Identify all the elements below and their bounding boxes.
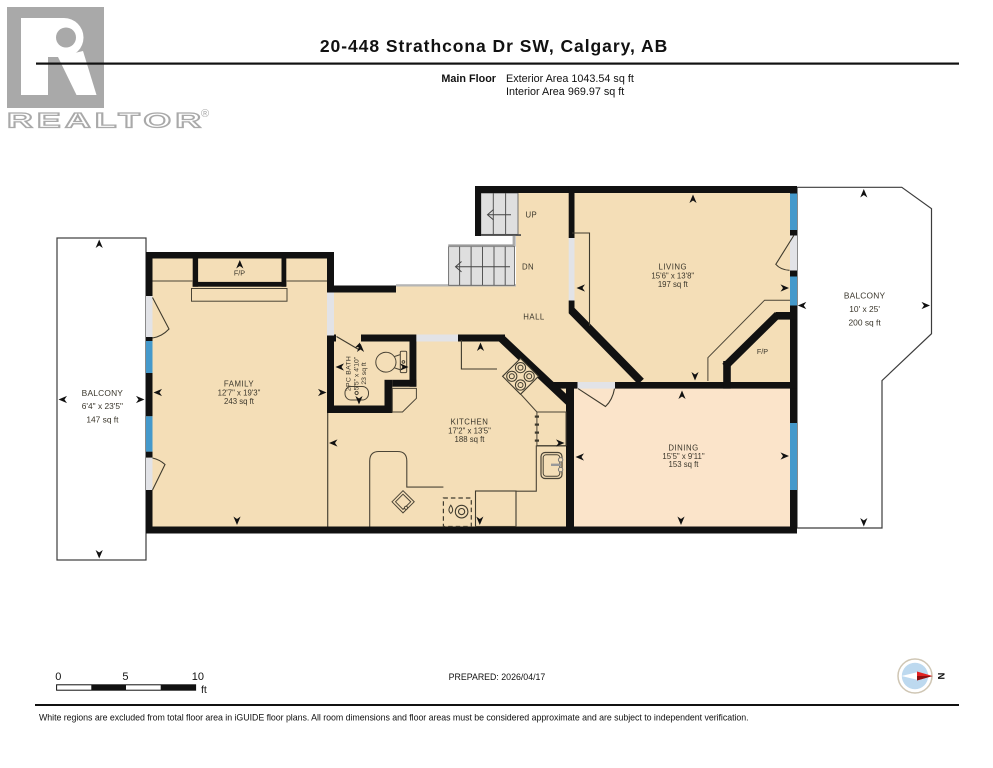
svg-text:10: 10	[192, 671, 204, 683]
svg-text:200 sq ft: 200 sq ft	[849, 317, 882, 327]
svg-text:N: N	[935, 673, 946, 680]
svg-text:HALL: HALL	[523, 312, 545, 321]
svg-text:Main Floor: Main Floor	[441, 73, 496, 85]
svg-text:LIVING: LIVING	[659, 263, 688, 272]
svg-text:Interior Area 969.97 sq ft: Interior Area 969.97 sq ft	[506, 86, 624, 98]
svg-text:243 sq ft: 243 sq ft	[224, 397, 255, 406]
svg-text:DN: DN	[522, 263, 534, 272]
svg-text:BALCONY: BALCONY	[82, 388, 124, 398]
svg-text:5: 5	[122, 671, 128, 683]
svg-text:0: 0	[55, 671, 61, 683]
svg-text:10' x 25': 10' x 25'	[849, 304, 880, 314]
svg-text:188 sq ft: 188 sq ft	[455, 435, 486, 444]
svg-text:BALCONY: BALCONY	[844, 291, 886, 301]
svg-text:147 sq ft: 147 sq ft	[86, 414, 119, 424]
svg-text:2PC BATH: 2PC BATH	[346, 356, 353, 391]
svg-text:197 sq ft: 197 sq ft	[658, 280, 689, 289]
svg-text:5'5" x 4'10": 5'5" x 4'10"	[353, 356, 360, 390]
svg-text:23 sq ft: 23 sq ft	[361, 362, 368, 384]
svg-text:6'4" x 23'5": 6'4" x 23'5"	[82, 401, 123, 411]
svg-text:UP: UP	[526, 210, 538, 219]
svg-text:Exterior Area 1043.54 sq ft: Exterior Area 1043.54 sq ft	[506, 73, 634, 85]
svg-text:®: ®	[201, 108, 209, 120]
svg-text:20-448 Strathcona Dr SW, Calga: 20-448 Strathcona Dr SW, Calgary, AB	[320, 36, 668, 56]
svg-text:F/P: F/P	[757, 347, 768, 356]
svg-text:White regions are excluded fro: White regions are excluded from total fl…	[39, 713, 749, 723]
svg-text:REALTOR: REALTOR	[7, 109, 205, 133]
svg-text:ft: ft	[201, 684, 207, 696]
svg-text:153 sq ft: 153 sq ft	[669, 460, 700, 469]
svg-text:F/P: F/P	[234, 268, 245, 277]
svg-text:PREPARED: 2026/04/17: PREPARED: 2026/04/17	[449, 672, 546, 682]
svg-text:KITCHEN: KITCHEN	[451, 418, 489, 427]
svg-text:FAMILY: FAMILY	[224, 380, 254, 389]
